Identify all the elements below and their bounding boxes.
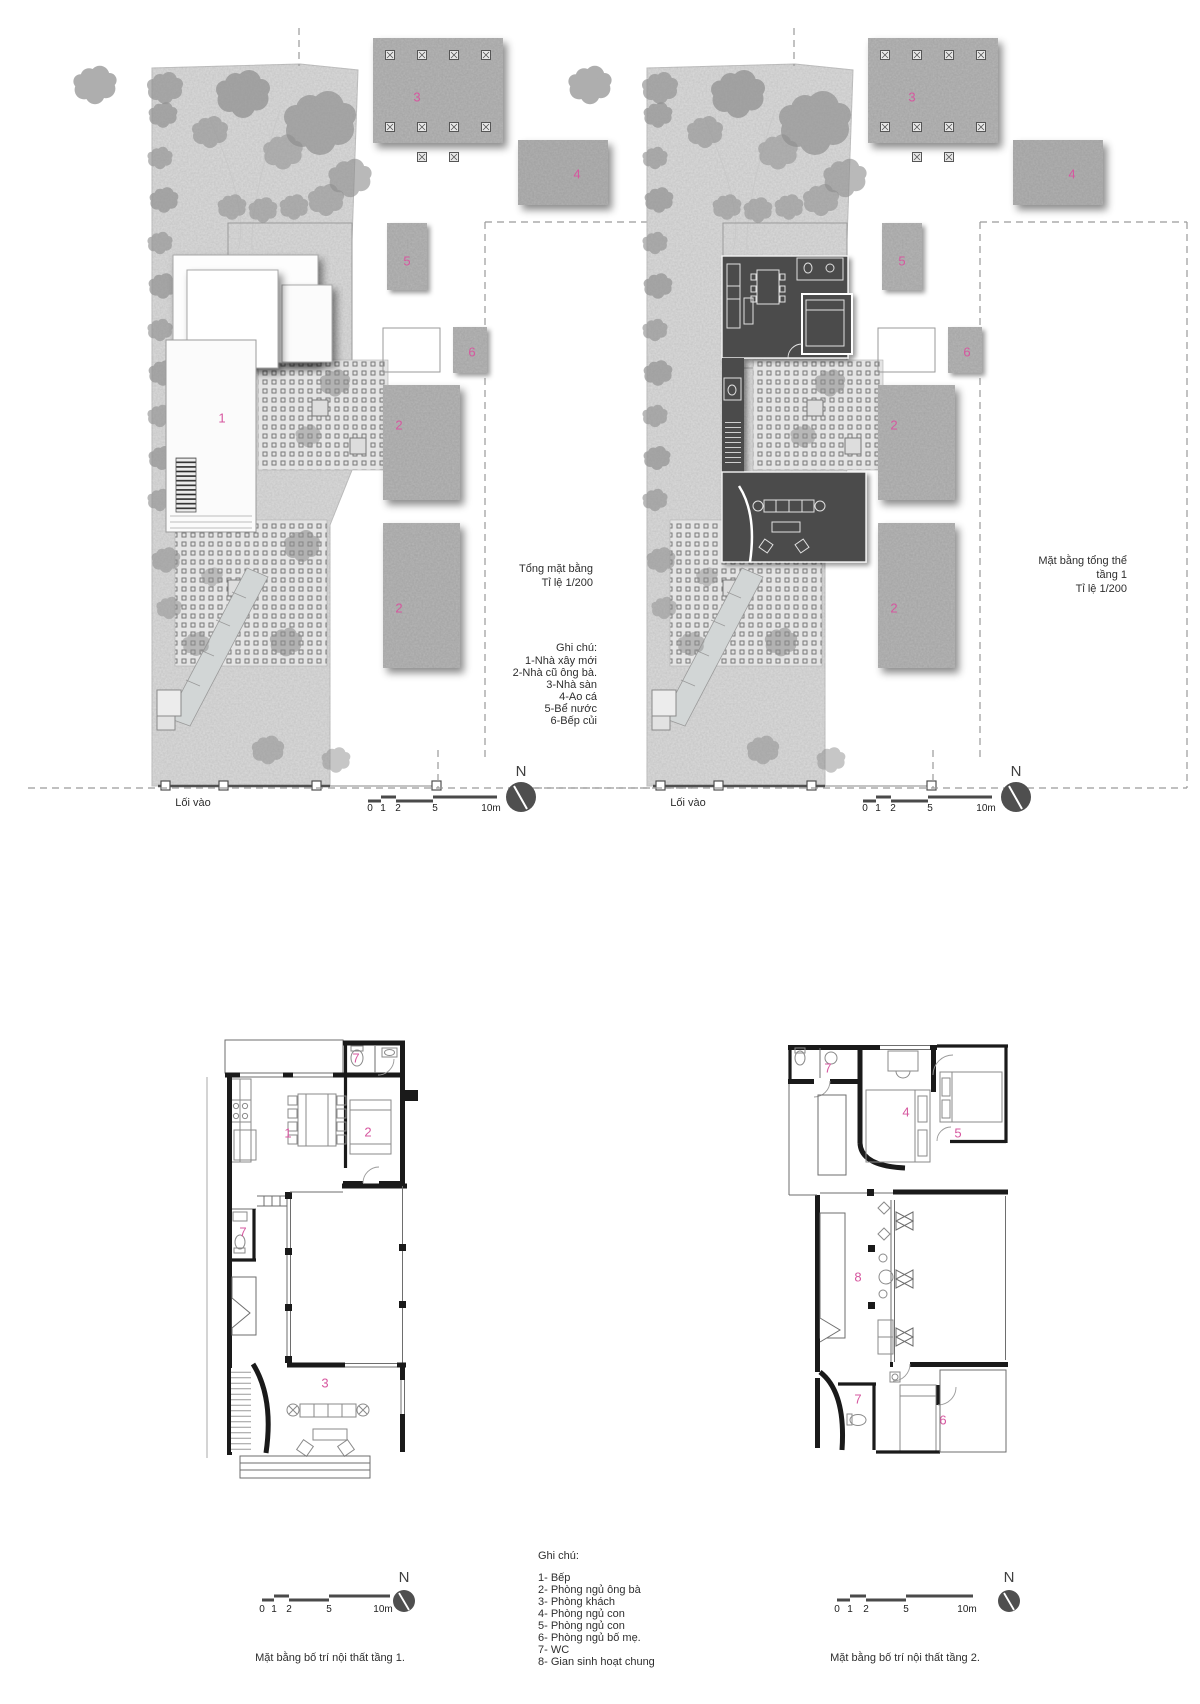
scale-label: 1: [847, 1604, 853, 1616]
scale-label: 5: [903, 1604, 909, 1616]
num-wood-kitchen: 6: [468, 345, 475, 360]
site-right-title-line2: tầng 1: [1096, 569, 1127, 581]
num-bedroom: 2: [364, 1125, 371, 1140]
num-wc-upper: 7: [824, 1061, 831, 1076]
num-wc-lower: 7: [854, 1392, 861, 1407]
num-wood-kitchen: 6: [963, 345, 970, 360]
scale-label: 2: [395, 803, 401, 815]
site-plan-right: [523, 28, 1187, 790]
scale-label: 5: [326, 1604, 332, 1616]
scale-label: 0: [834, 1604, 840, 1616]
scale-label: 10m: [957, 1604, 976, 1616]
floor-plan-level-2: [788, 1045, 1008, 1453]
room-legend-item: 1- Bếp: [538, 1572, 570, 1584]
num-wc-lower: 7: [239, 1225, 246, 1240]
scale-label: 2: [863, 1604, 869, 1616]
scale-label: 10m: [481, 803, 500, 815]
site-left-title-line1: Tổng mặt bằng: [519, 563, 593, 575]
room-legend-item: 4- Phòng ngủ con: [538, 1608, 625, 1620]
room-legend-item: 8- Gian sinh hoạt chung: [538, 1656, 655, 1668]
compass-plan-1: [393, 1590, 415, 1612]
scale-bar-plan-1: [262, 1596, 390, 1600]
num-water-tank: 5: [403, 254, 410, 269]
num-old-house-b: 2: [890, 601, 897, 616]
num-kitchen: 1: [284, 1126, 291, 1141]
num-old-house-b: 2: [395, 601, 402, 616]
site-left-title-line2: Tỉ lệ 1/200: [542, 577, 593, 589]
scale-label: 10m: [976, 803, 995, 815]
architectural-drawing-sheet: Tổng mặt bằng Tỉ lệ 1/200 Ghi chú: 1-Nhà…: [0, 0, 1200, 1704]
compass-site-left: [506, 782, 536, 812]
room-legend-item: 3- Phòng khách: [538, 1596, 615, 1608]
floor-plan-1-caption: Mặt bằng bố trí nội thất tầng 1.: [255, 1652, 405, 1664]
north-label: N: [516, 766, 527, 778]
entrance-label-left: Lối vào: [175, 797, 210, 809]
room-legend-item: 5- Phòng ngủ con: [538, 1620, 625, 1632]
num-new-house: 1: [218, 411, 225, 426]
site-legend-item: 3-Nhà sàn: [546, 679, 597, 691]
scale-label: 1: [875, 803, 881, 815]
num-old-house-a: 2: [395, 418, 402, 433]
site-right-title-line3: Tỉ lệ 1/200: [1076, 583, 1127, 595]
site-legend-item: 2-Nhà cũ ông bà.: [513, 667, 597, 679]
floor-plan-level-1: [207, 1040, 418, 1478]
num-fish-pond: 4: [573, 167, 580, 182]
scale-label: 5: [432, 803, 438, 815]
num-common-area: 8: [854, 1270, 861, 1285]
entrance-label-right: Lối vào: [670, 797, 705, 809]
scale-bar-site-left: [368, 797, 497, 801]
num-stilt-house: 3: [908, 90, 915, 105]
scale-label: 1: [380, 803, 386, 815]
north-label: N: [399, 1572, 410, 1584]
compass-plan-2: [998, 1590, 1020, 1612]
plans-artwork: [0, 0, 1200, 1704]
num-bedroom-5: 5: [954, 1126, 961, 1141]
compass-site-right: [1001, 782, 1031, 812]
num-fish-pond: 4: [1068, 167, 1075, 182]
site-legend-item: 6-Bếp củi: [551, 715, 597, 727]
scale-label: 0: [367, 803, 373, 815]
scale-bar-plan-2: [837, 1596, 973, 1600]
site-right-title-line1: Mặt bằng tổng thể: [1038, 555, 1127, 567]
scale-label: 10m: [373, 1604, 392, 1616]
scale-label: 0: [862, 803, 868, 815]
north-label: N: [1011, 766, 1022, 778]
room-legend-item: 2- Phòng ngủ ông bà: [538, 1584, 641, 1596]
num-living: 3: [321, 1376, 328, 1391]
site-legend-item: 5-Bể nước: [545, 703, 598, 715]
scale-label: 0: [259, 1604, 265, 1616]
num-wc-upper: 7: [352, 1051, 359, 1066]
scale-label: 1: [271, 1604, 277, 1616]
scale-label: 2: [890, 803, 896, 815]
floor-plan-2-caption: Mặt bằng bố trí nội thất tầng 2.: [830, 1652, 980, 1664]
scale-label: 2: [286, 1604, 292, 1616]
room-legend-title: Ghi chú:: [538, 1550, 579, 1562]
site-left-legend-title: Ghi chú:: [556, 642, 597, 654]
num-old-house-a: 2: [890, 418, 897, 433]
scale-label: 5: [927, 803, 933, 815]
room-legend-item: 6- Phòng ngủ bố mẹ.: [538, 1632, 641, 1644]
north-label: N: [1004, 1572, 1015, 1584]
num-bedroom-4: 4: [902, 1105, 909, 1120]
num-water-tank: 5: [898, 254, 905, 269]
site-legend-item: 4-Ao cá: [559, 691, 597, 703]
site-legend-item: 1-Nhà xây mới: [525, 655, 597, 667]
room-legend-item: 7- WC: [538, 1644, 569, 1656]
scale-bar-site-right: [863, 797, 992, 801]
num-stilt-house: 3: [413, 90, 420, 105]
num-bedroom-6: 6: [939, 1413, 946, 1428]
